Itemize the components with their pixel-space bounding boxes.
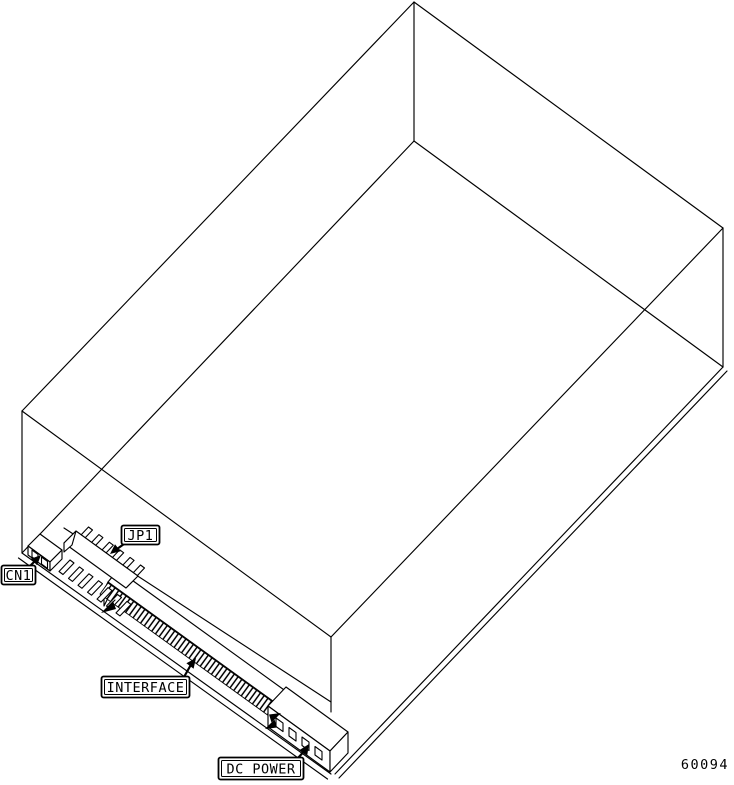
interface-callout-text: INTERFACE	[107, 680, 185, 696]
figure-number: 60094	[681, 757, 729, 773]
jp1-callout-text: JP1	[128, 528, 154, 544]
jp1-callout: JP1	[110, 526, 160, 555]
dc-power-callout-text: DC POWER	[226, 762, 295, 778]
diagram-canvas: CN1 JP1 INTERFACE DC POWER 60094	[0, 0, 734, 785]
cn1-callout-text: CN1	[6, 568, 32, 584]
interface-connector	[100, 570, 298, 724]
interface-callout: INTERFACE	[102, 658, 197, 698]
hard-drive-diagram: CN1 JP1 INTERFACE DC POWER 60094	[0, 0, 734, 785]
dc-power-callout: DC POWER	[219, 744, 310, 780]
